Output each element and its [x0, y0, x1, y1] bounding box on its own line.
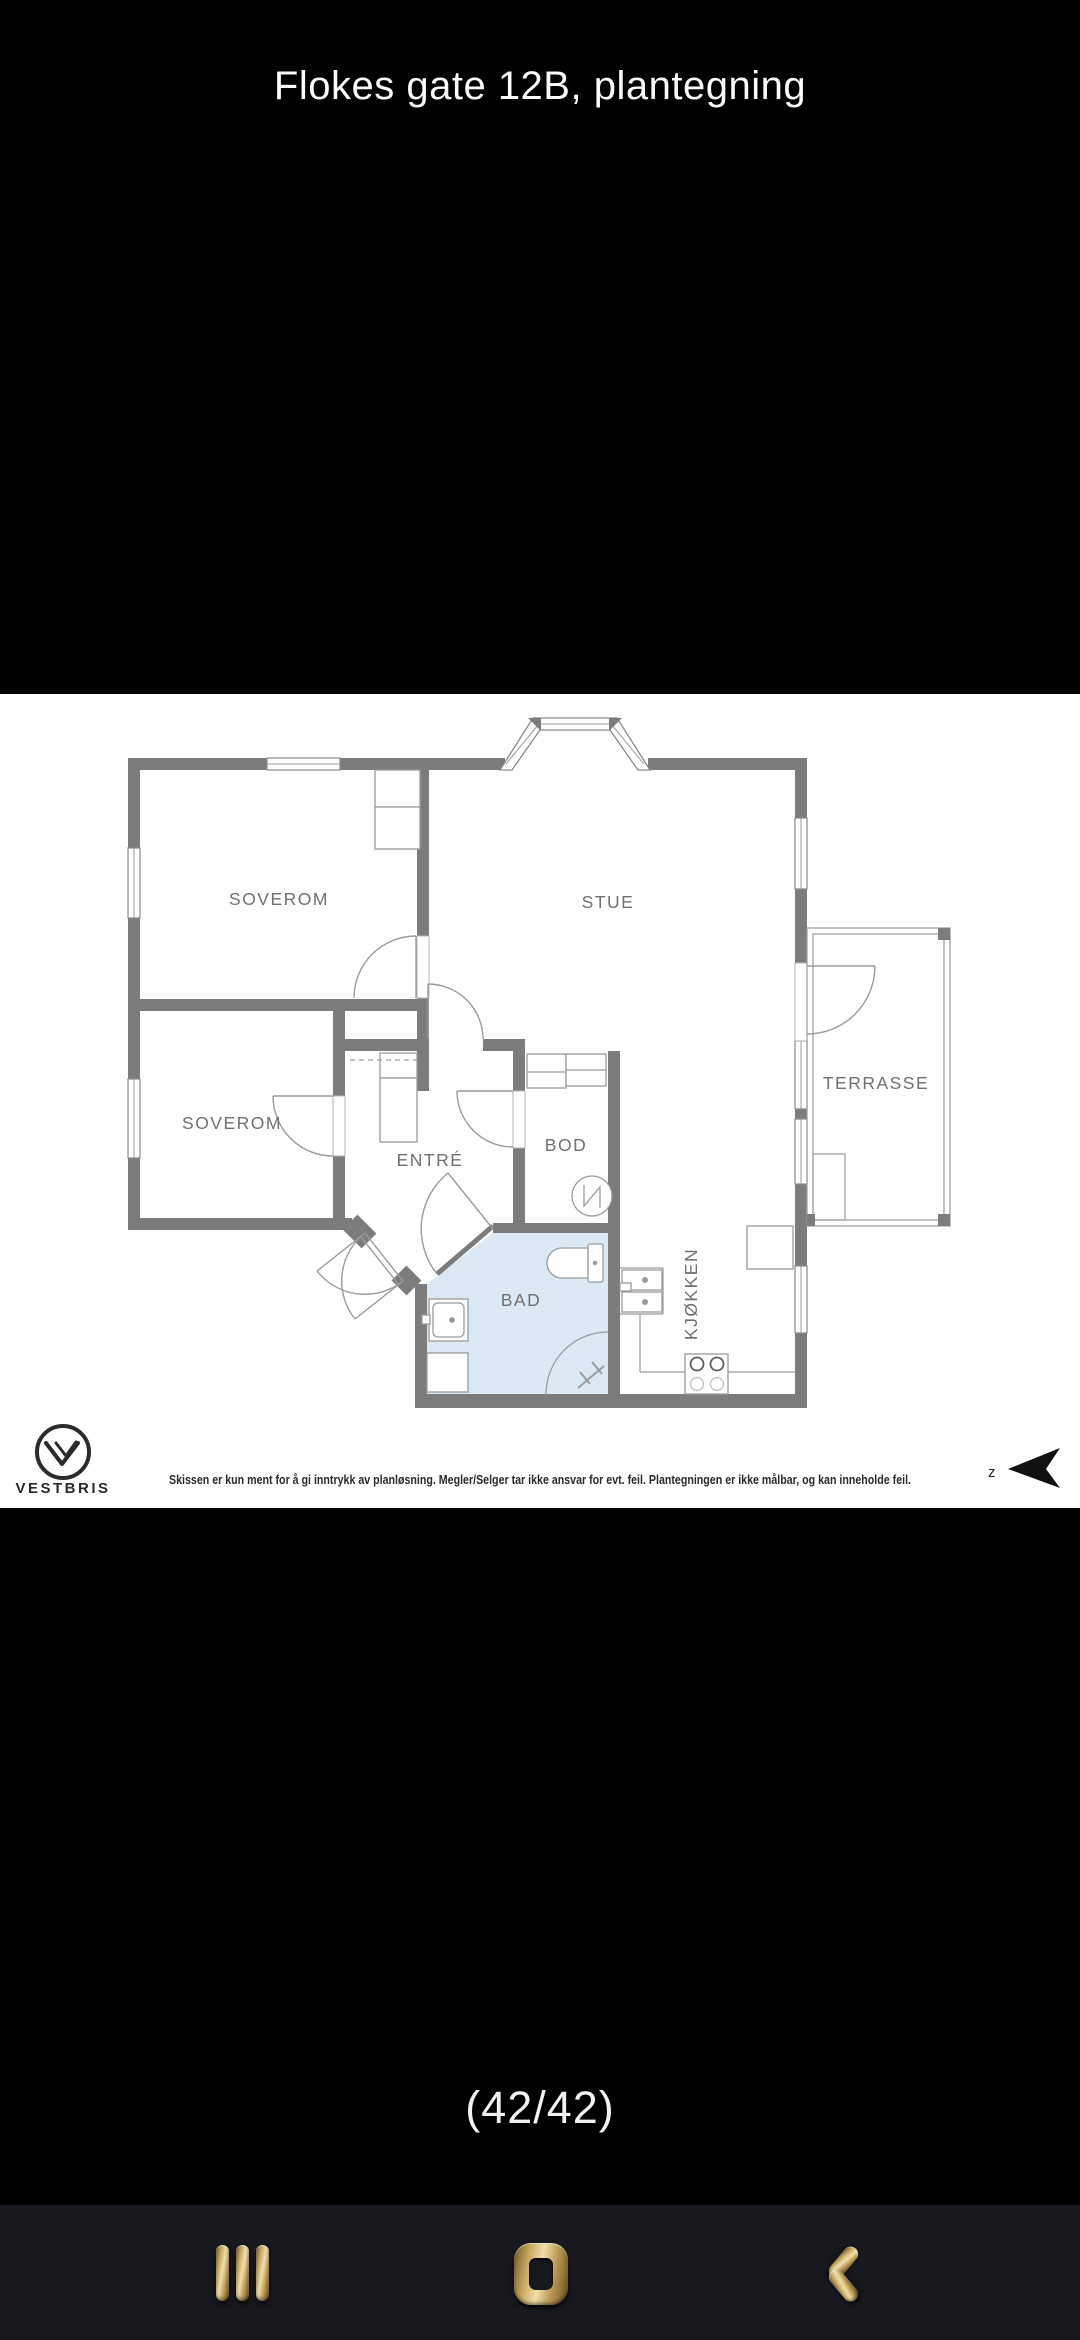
room-label-soverom-2: SOVEROM	[182, 1113, 282, 1133]
vestbris-logo-icon	[37, 1426, 89, 1478]
north-arrow-label: z	[988, 1464, 996, 1481]
room-label-stue: STUE	[582, 892, 635, 912]
disclaimer-text: Skissen er kun ment for å gi inntrykk av…	[169, 1473, 911, 1487]
three-bars-icon	[216, 2245, 229, 2301]
recents-button[interactable]	[216, 2245, 272, 2301]
home-button[interactable]	[514, 2243, 568, 2305]
bay-window	[500, 718, 650, 770]
room-label-bod: BOD	[545, 1135, 587, 1155]
floorplan-image[interactable]: SOVEROM STUE SOVEROM ENTRÉ BOD BAD TERRA…	[0, 694, 1080, 1508]
brand-name: VESTBRIS	[15, 1480, 110, 1497]
room-label-entre: ENTRÉ	[397, 1150, 464, 1170]
rounded-square-icon	[529, 2258, 553, 2290]
room-label-terrasse: TERRASSE	[823, 1073, 929, 1093]
android-navbar	[0, 2205, 1080, 2340]
room-label-soverom-1: SOVEROM	[229, 889, 329, 909]
page-title: Flokes gate 12B, plantegning	[0, 64, 1080, 109]
north-arrow-icon: z	[988, 1448, 1060, 1488]
back-button[interactable]	[824, 2245, 866, 2303]
room-label-kjokken: KJØKKEN	[681, 1248, 701, 1340]
phone-screen: Flokes gate 12B, plantegning	[0, 0, 1080, 2340]
page-counter: (42/42)	[0, 2082, 1080, 2134]
room-label-bad: BAD	[501, 1290, 541, 1310]
